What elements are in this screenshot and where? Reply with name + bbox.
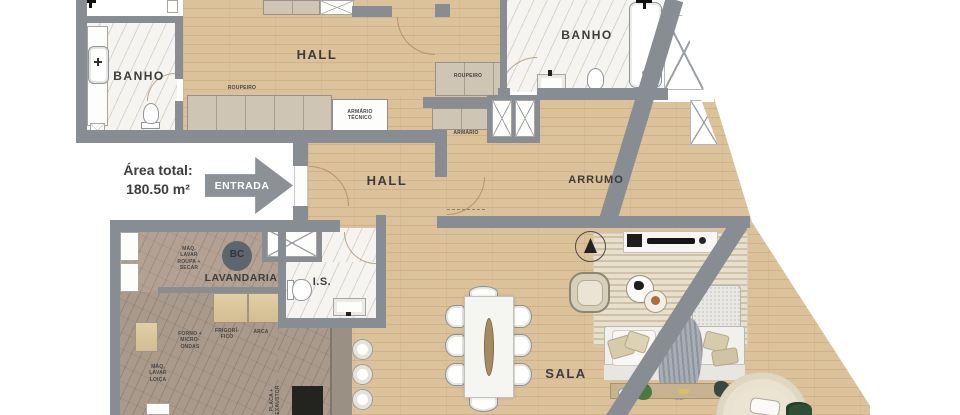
shaft-left <box>492 100 512 137</box>
elevator-shaft <box>267 229 317 257</box>
armario-closet <box>432 108 490 130</box>
room-label-sala: SALA <box>536 367 596 381</box>
dining-chair-r3 <box>512 363 532 386</box>
door-leaf-arrumo <box>447 209 485 210</box>
armario-label: ARMÁRIO <box>448 130 484 136</box>
skylight-hatch <box>320 0 354 15</box>
dining-chair-l3 <box>445 363 465 386</box>
table-runner <box>484 318 494 376</box>
floor-plan-canvas: BC MÁQ. LAVAR ROUPA + SECAR FRIGORÍ- FIC… <box>0 0 960 415</box>
dining-chair-r2 <box>512 334 532 357</box>
wall-left-upper <box>76 0 87 143</box>
cooktop-label: PLACA + EXAUSTOR <box>269 383 291 415</box>
wall-hall-arrumo <box>435 130 447 177</box>
shaft-right <box>515 100 535 137</box>
console-candle <box>679 389 689 394</box>
area-total-block: Área total: 180.50 m² <box>108 161 208 199</box>
entrada-label: ENTRADA <box>209 157 275 214</box>
wall-lower-top <box>110 220 340 232</box>
wall-is-bottom <box>278 318 386 328</box>
oven-label: FORNO + MICRO- ONDAS <box>172 331 208 350</box>
coffee-table-decor <box>634 281 644 290</box>
room-label-banho1: BANHO <box>109 70 169 83</box>
room-label-hall-lower: HALL <box>357 174 417 188</box>
washer-label: MÁQ. LAVAR ROUPA + SECAR <box>172 246 206 271</box>
entrance-door-leaf <box>294 165 308 207</box>
bar-stool-1 <box>352 339 373 360</box>
wall-arrumo-top <box>423 97 487 108</box>
room-label-hall-upper: HALL <box>287 48 347 62</box>
coffee-table-small-decor <box>651 296 660 305</box>
wall-hall-top-b <box>435 4 450 17</box>
room-label-banho2: BANHO <box>557 29 617 42</box>
oven-cabinet <box>135 322 158 352</box>
banho2-toilet-bowl <box>587 68 604 90</box>
banho2-shower-faucet-stem <box>643 3 646 9</box>
speaker-dot <box>699 237 706 244</box>
dishwasher <box>146 403 170 415</box>
wall-lavandaria-kitchen <box>158 287 286 293</box>
roupeiro-corridor-label: ROUPEIRO <box>448 73 488 79</box>
is-sink-faucet-icon <box>346 312 351 316</box>
entrada-arrow: ENTRADA <box>205 157 293 214</box>
fridge-cabinet <box>213 293 248 323</box>
washing-machine <box>120 232 139 261</box>
corner-plant <box>786 402 812 415</box>
duct-box <box>167 0 178 13</box>
bar-stool-2 <box>352 364 373 385</box>
speaker-box <box>627 234 642 247</box>
room-label-is: I.S. <box>302 276 342 288</box>
closet-top-strip <box>263 0 320 15</box>
upper-room-faucet-stem <box>89 3 92 8</box>
wall-banho1-right-b <box>175 101 183 133</box>
bc-label: BC <box>222 249 252 260</box>
rattan-armchair-cushion <box>577 280 603 306</box>
area-total-value: 180.50 m² <box>108 180 208 199</box>
wall-sala-top <box>437 216 750 228</box>
roupeiro-hall-label: ROUPEIRO <box>222 85 262 91</box>
dining-chair-r1 <box>512 305 532 328</box>
wall-banho1-right-a <box>175 16 183 79</box>
wall-is-right <box>376 215 386 328</box>
wall-banho2-left <box>500 0 507 95</box>
wall-banho2-bottom-a <box>498 88 510 100</box>
banho1-toilet-bowl <box>143 103 159 124</box>
area-total-caption: Área total: <box>108 161 208 180</box>
wall-banho1-top <box>87 16 183 23</box>
wall-hall-bottom <box>76 130 447 143</box>
roupeiro-hall-closet <box>187 95 332 133</box>
fridge-label: FRIGORÍ- FICO <box>210 328 244 341</box>
cooktop <box>292 386 323 415</box>
dryer-machine <box>120 263 139 292</box>
dining-chair-l1 <box>445 305 465 328</box>
tv-screen <box>647 238 695 244</box>
wall-left-lower <box>110 220 120 415</box>
banho1-bathtub <box>88 46 109 84</box>
wall-entry-top <box>293 140 308 166</box>
banho1-tub-faucet-icon-v <box>97 58 99 66</box>
corner-chair <box>749 397 781 415</box>
room-label-lavandaria: LAVANDARIA <box>203 273 279 285</box>
bar-stool-3 <box>352 389 373 410</box>
wall-hall-top-a <box>352 6 392 17</box>
freezer-label: ARCA <box>247 329 275 335</box>
wall-lavandaria-right <box>278 222 286 318</box>
dining-chair-l2 <box>445 334 465 357</box>
room-label-arrumo: ARRUMO <box>566 174 626 186</box>
armario-tecnico-label: ARMÁRIO TÉCNICO <box>336 109 384 122</box>
floor-plan: BC MÁQ. LAVAR ROUPA + SECAR FRIGORÍ- FIC… <box>0 0 960 415</box>
kitchen-island <box>330 328 352 415</box>
banho2-sink-faucet-icon <box>548 70 552 76</box>
dishwasher-label: MÁQ. LAVAR LOIÇA <box>144 364 172 383</box>
